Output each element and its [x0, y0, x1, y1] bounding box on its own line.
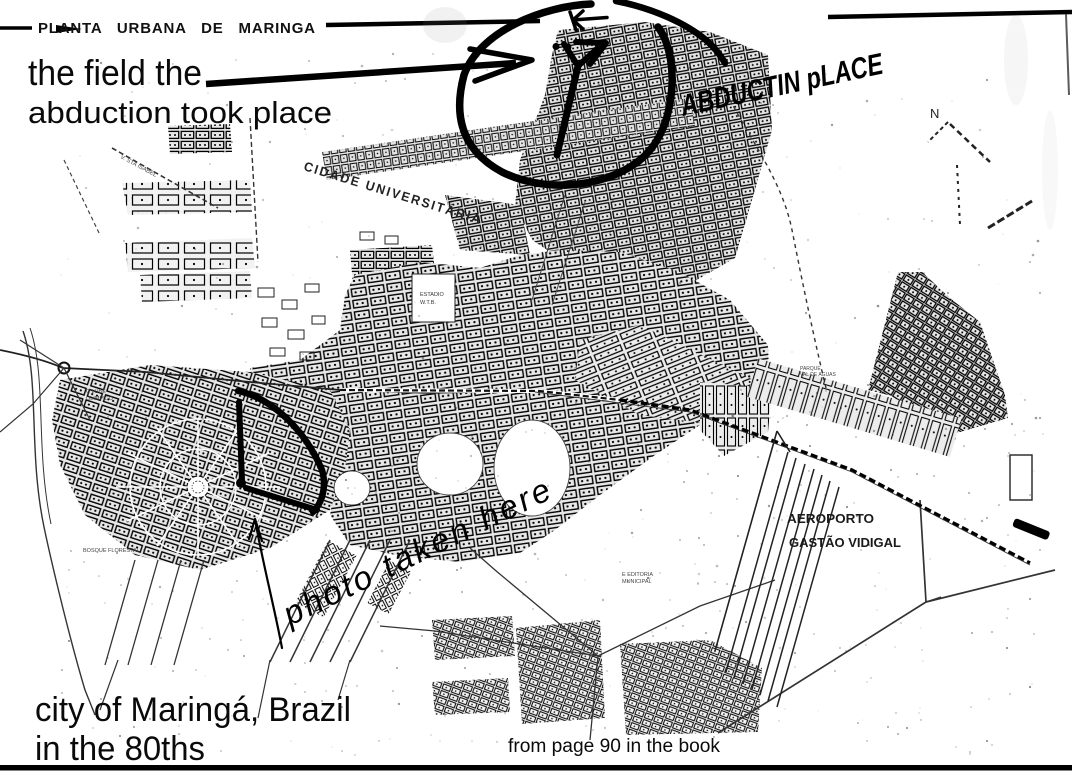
svg-text:MUNICIPAL: MUNICIPAL [622, 579, 652, 585]
svg-text:city of Maringá, Brazil: city of Maringá, Brazil [35, 691, 351, 729]
svg-text:ESTADIO: ESTADIO [420, 292, 444, 298]
svg-text:VAL DE AGUAS: VAL DE AGUAS [800, 372, 837, 378]
svg-text:the field the: the field the [28, 52, 202, 93]
svg-text:PLANTA URBANA DE MARINGA: PLANTA URBANA DE MARINGA [38, 20, 315, 37]
svg-text:AEROPORTO: AEROPORTO [787, 512, 874, 526]
svg-text:E EDITORIA: E EDITORIA [622, 572, 653, 578]
svg-text:abduction took place: abduction took place [28, 95, 332, 130]
svg-text:from page 90 in the book: from page 90 in the book [508, 736, 720, 757]
svg-text:W.T.B.: W.T.B. [420, 300, 436, 306]
svg-text:C LUBE: C LUBE [86, 389, 106, 395]
svg-text:N: N [930, 106, 939, 121]
svg-text:OLIMPICO: OLIMPICO [86, 396, 114, 402]
svg-text:BOSQUE FLORESTAL: BOSQUE FLORESTAL [83, 548, 140, 554]
svg-text:in the 80ths: in the 80ths [35, 730, 205, 768]
svg-text:GASTÃO VIDIGAL: GASTÃO VIDIGAL [789, 535, 901, 550]
